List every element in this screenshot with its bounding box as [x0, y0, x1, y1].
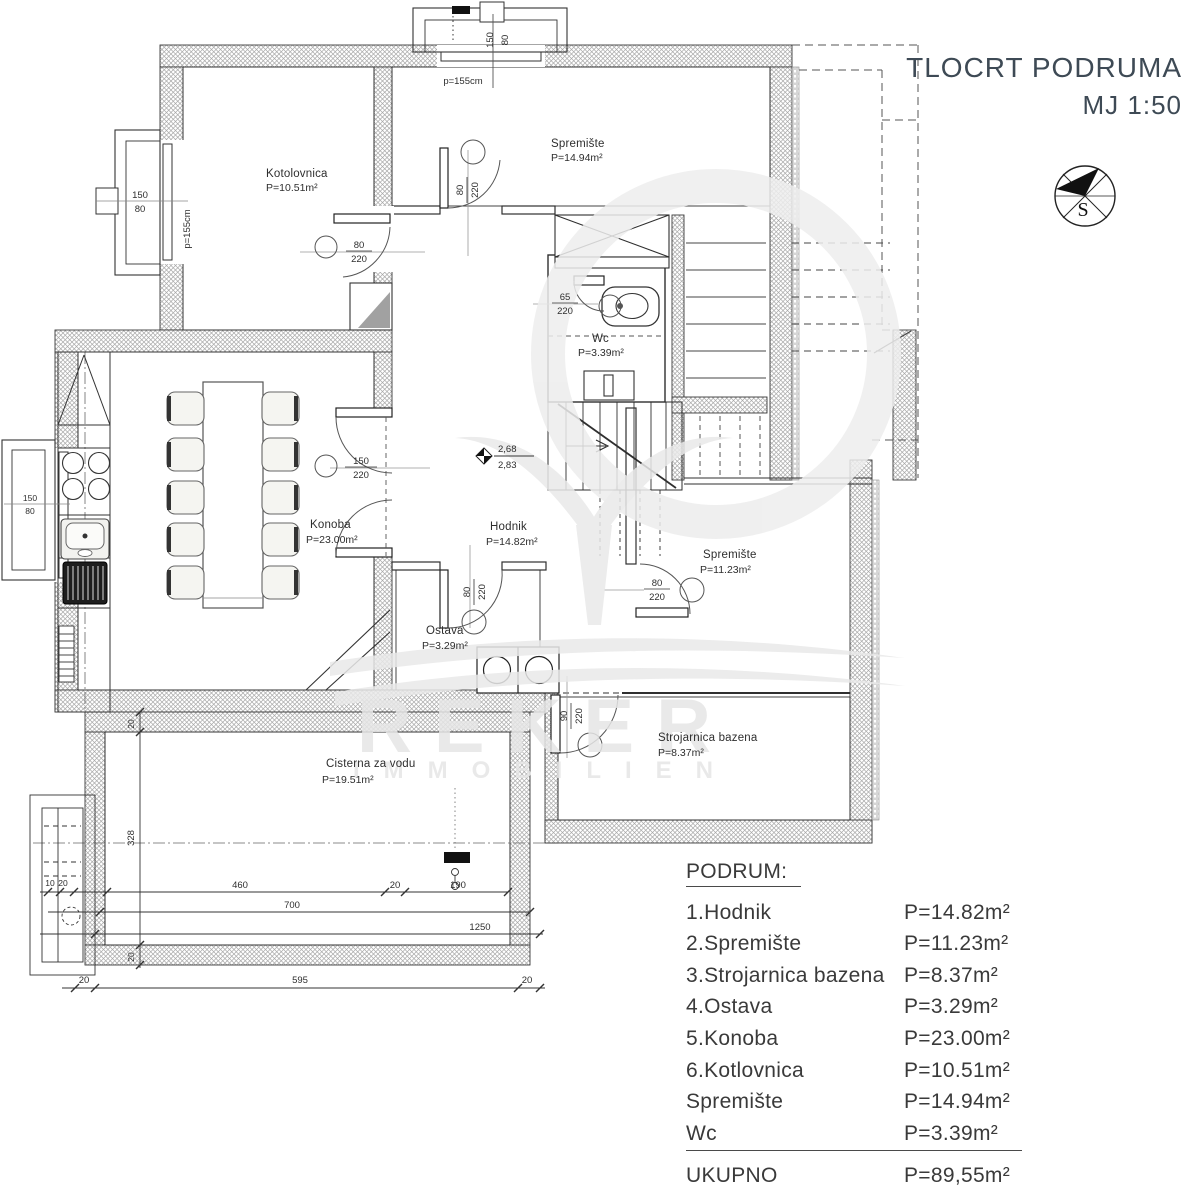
room-label-wc-area: P=3.39m²	[578, 347, 624, 359]
sink-icon	[61, 519, 109, 559]
dim-text: 700	[284, 900, 300, 911]
dim-text: 220	[353, 470, 369, 481]
legend-total-label: UKUPNO	[686, 1164, 904, 1188]
legend-row-value: P=23.00m²	[904, 1027, 1022, 1051]
dim-text: p=155cm	[443, 76, 482, 87]
watermark: REKER IMMOBILIEN	[330, 186, 905, 784]
dim-text: 220	[557, 306, 573, 317]
legend-row-value: P=3.29m²	[904, 995, 1022, 1019]
legend: PODRUM: 1.Hodnik P=14.82m² 2.Spremište P…	[686, 860, 1022, 1188]
page-title: TLOCRT PODRUMA	[852, 52, 1182, 84]
room-label-konoba-name: Konoba	[310, 519, 351, 531]
room-label-kotlovnica-name: Kotolovnica	[266, 168, 328, 180]
legend-row: Wc P=3.39m²	[686, 1114, 1022, 1151]
compass-label: S	[1077, 199, 1088, 221]
dim-text: 595	[292, 975, 308, 986]
washbasin-icon	[584, 371, 634, 400]
door-spremiste-right	[604, 564, 704, 617]
dim-text: 90	[559, 711, 570, 722]
dim-text: 80	[135, 204, 146, 215]
dim-text: p=155cm	[182, 209, 193, 248]
dim-door-ostava: 80 220	[462, 579, 488, 605]
dim-text: 220	[477, 584, 488, 600]
scale-label: MJ 1:50	[852, 90, 1182, 121]
legend-row-label: 6.Kotlovnica	[686, 1059, 904, 1083]
room-label-cisterna-area: P=19.51m²	[322, 774, 374, 786]
dim-text: 460	[232, 880, 248, 891]
room-label-wc-name: Wc	[592, 333, 609, 345]
dim-text: 80	[25, 506, 35, 516]
legend-row-label: 3.Strojarnica bazena	[686, 964, 904, 988]
dim-text: 80	[455, 185, 466, 196]
room-label-hodnik-area: P=14.82m²	[486, 536, 538, 548]
room-label-spremiste-top-area: P=14.94m²	[551, 152, 603, 164]
dim-text: 150	[485, 32, 496, 48]
toilet-icon	[602, 287, 659, 326]
legend-row: Spremište P=14.94m²	[686, 1083, 1022, 1115]
legend-row-value: P=10.51m²	[904, 1059, 1022, 1083]
dim-text: 220	[351, 254, 367, 265]
dim-text: 150	[353, 456, 369, 467]
room-label-konoba-area: P=23.00m²	[306, 534, 358, 546]
chimney-icon	[350, 283, 392, 330]
dim-text: 20	[126, 952, 136, 962]
section-marker-bar	[444, 852, 470, 863]
room-label-spremiste-right-name: Spremište	[703, 549, 757, 561]
dim-text: 80	[462, 587, 473, 598]
legend-row-label: Wc	[686, 1122, 904, 1146]
dim-text: 20	[79, 975, 90, 986]
elevation-upper: 2,68	[498, 444, 517, 455]
grill-unit-icon	[63, 562, 107, 604]
room-label-ostava-name: Ostava	[426, 625, 464, 637]
legend-row-value: P=14.82m²	[904, 901, 1022, 925]
dim-text: 20	[522, 975, 533, 986]
legend-row-label: 5.Konoba	[686, 1027, 904, 1051]
dim-text: 80	[652, 578, 663, 589]
dim-text: 20	[126, 719, 136, 729]
room-label-spremiste-top-name: Spremište	[551, 138, 605, 150]
legend-row-label: 1.Hodnik	[686, 901, 904, 925]
room-label-strojarnica-name: Strojarnica bazena	[658, 732, 758, 744]
legend-row: 4.Ostava P=3.29m²	[686, 988, 1022, 1020]
room-label-strojarnica-area: P=8.37m²	[658, 747, 704, 759]
dim-text: 10	[45, 878, 55, 888]
legend-total-value: P=89,55m²	[904, 1164, 1022, 1188]
legend-row: 2.Spremište P=11.23m²	[686, 925, 1022, 957]
legend-row-label: Spremište	[686, 1090, 904, 1114]
dim-text: 190	[450, 880, 466, 891]
legend-row: 3.Strojarnica bazena P=8.37m²	[686, 956, 1022, 988]
elevation-lower: 2,83	[498, 460, 517, 471]
legend-total-row: UKUPNO P=89,55m²	[686, 1157, 1022, 1189]
dim-text: 65	[560, 292, 571, 303]
ladder-icon	[59, 626, 74, 682]
dining-table	[203, 382, 263, 608]
room-label-ostava-area: P=3.29m²	[422, 640, 468, 652]
legend-heading: PODRUM:	[686, 860, 801, 887]
title-block: TLOCRT PODRUMA MJ 1:50	[852, 52, 1182, 121]
legend-row-label: 2.Spremište	[686, 932, 904, 956]
dim-text: 220	[649, 592, 665, 603]
legend-row: 6.Kotlovnica P=10.51m²	[686, 1051, 1022, 1083]
compass-icon: S	[1055, 166, 1115, 226]
room-label-cisterna-name: Cisterna za vodu	[326, 758, 416, 770]
dim-text: 220	[470, 182, 481, 198]
legend-row-value: P=14.94m²	[904, 1090, 1022, 1114]
dim-text: 80	[354, 240, 365, 251]
room-label-spremiste-right-area: P=11.23m²	[700, 564, 751, 576]
floor-plan-page: REKER IMMOBILIEN Kotolovnica P=10.51m² S…	[0, 0, 1200, 1200]
room-label-kotlovnica-area: P=10.51m²	[266, 182, 318, 194]
legend-row-label: 4.Ostava	[686, 995, 904, 1019]
dim-door-spremiste-right: 80 220	[644, 578, 670, 603]
legend-row-value: P=11.23m²	[904, 932, 1022, 956]
room-label-hodnik-name: Hodnik	[490, 521, 527, 533]
dim-text: 328	[126, 830, 137, 846]
legend-row-value: P=3.39m²	[904, 1122, 1022, 1146]
dim-text: 220	[574, 708, 585, 724]
legend-row-value: P=8.37m²	[904, 964, 1022, 988]
dim-text: 150	[23, 493, 37, 503]
dim-text: 20	[58, 878, 68, 888]
dim-door-kotlovnica: 80 220	[346, 240, 372, 265]
legend-row: 5.Konoba P=23.00m²	[686, 1019, 1022, 1051]
dim-text: 80	[500, 35, 511, 46]
dim-text: 20	[390, 880, 401, 891]
legend-row: 1.Hodnik P=14.82m²	[686, 893, 1022, 925]
dim-text: 1250	[469, 922, 490, 933]
dim-text: 150	[132, 190, 148, 201]
